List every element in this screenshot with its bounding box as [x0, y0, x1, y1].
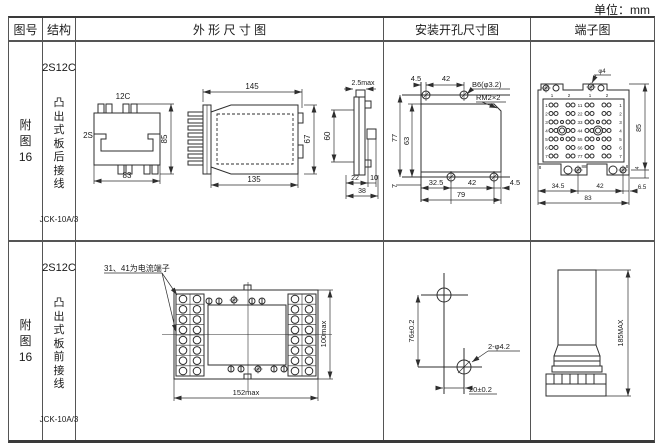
- svg-text:77: 77: [577, 154, 583, 159]
- row2-mounting-drawing: 76±0.2 2-φ4.2 20±0.2: [384, 242, 531, 440]
- svg-text:44: 44: [577, 129, 583, 134]
- svg-text:55: 55: [577, 137, 583, 142]
- header-mounting-label: 安装开孔尺寸图: [415, 21, 499, 38]
- row1-mounting-drawing: 4.5 42 B6(φ3.2) RM2×2 77 63 7: [384, 42, 531, 242]
- right-terminal-group: [288, 294, 316, 376]
- dim-label: 60: [323, 131, 332, 140]
- header-terminal: 端子图: [531, 18, 654, 42]
- dim-label: 2S: [83, 131, 93, 140]
- svg-text:22: 22: [577, 112, 583, 117]
- dim-label: 185MAX: [618, 319, 625, 346]
- profile-view: 2.5max 60 22 10 38: [323, 80, 378, 199]
- dim-label: 12C: [116, 92, 131, 101]
- dim-label: 85: [636, 124, 643, 132]
- hole-spec-label: B6(φ3.2): [472, 80, 502, 89]
- dim-label: 42: [596, 183, 604, 190]
- header-structure: 结构: [43, 18, 76, 42]
- dim-label: 38: [358, 188, 366, 195]
- dimension-table: 图号 结构 外 形 尺 寸 图 安装开孔尺寸图 端子图 附 图 16 2S12C…: [8, 16, 655, 443]
- dim-label: 2.5max: [352, 80, 375, 87]
- header-fig-no: 图号: [9, 18, 43, 42]
- svg-text:11: 11: [578, 103, 583, 108]
- row2-fig-no-cell: 附 图 16: [9, 242, 43, 440]
- svg-text:8: 8: [539, 165, 542, 170]
- svg-text:4: 4: [619, 129, 622, 134]
- header-terminal-label: 端子图: [574, 21, 610, 38]
- front-view: 12C 2S 85 83: [83, 92, 174, 184]
- dim-label: 63: [402, 137, 411, 145]
- thread-spec-label: RM2×2: [476, 93, 500, 102]
- svg-text:6: 6: [545, 146, 548, 151]
- row2-structure-cell: 2S12C 凸 出 式 板 前 接 线 JCK-10A/3: [43, 242, 76, 440]
- row2-terminal-drawing: 185MAX: [531, 242, 654, 440]
- svg-text:2: 2: [619, 112, 622, 117]
- dim-label: 10: [370, 175, 378, 182]
- row2-structure-desc: 凸 出 式 板 前 接 线: [54, 297, 65, 392]
- row2-terminal-cell: 185MAX: [531, 242, 654, 440]
- row2-outline-drawing: 31、41为电流端子: [76, 242, 384, 440]
- dim-label: 4.5: [411, 74, 421, 83]
- datasheet-page: 单位：mm 图号 结构 外 形 尺 寸 图 安装开孔尺寸图 端子图 附 图 16…: [0, 0, 662, 446]
- dim-label: 85: [160, 134, 169, 143]
- svg-text:1: 1: [619, 103, 622, 108]
- svg-text:7: 7: [545, 154, 548, 159]
- svg-text:5: 5: [545, 137, 548, 142]
- dim-label: 6.5: [638, 185, 647, 191]
- row2-mounting-cell: 76±0.2 2-φ4.2 20±0.2: [384, 242, 531, 440]
- row1-structure-desc: 凸 出 式 板 后 接 线: [54, 97, 65, 192]
- svg-text:2: 2: [545, 112, 548, 117]
- row2-relay-code: JCK-10A/3: [40, 415, 79, 424]
- terminal-col-label: 2: [606, 93, 609, 98]
- dim-label: 135: [247, 175, 261, 184]
- row2-fig-no: 附 图 16: [9, 242, 42, 440]
- dim-label: 7: [390, 184, 399, 188]
- row1-relay-code: JCK-10A/3: [40, 215, 79, 224]
- dim-label: 4: [635, 166, 641, 169]
- header-outline-label: 外 形 尺 寸 图: [193, 21, 266, 38]
- header-mounting: 安装开孔尺寸图: [384, 18, 531, 42]
- dim-label: 34.5: [552, 183, 565, 190]
- svg-text:3: 3: [619, 120, 622, 125]
- dim-label: 22: [351, 175, 359, 182]
- svg-text:3: 3: [545, 120, 548, 125]
- hole-spec-label: 2-φ4.2: [488, 342, 510, 351]
- dim-label: 100max: [319, 320, 328, 347]
- terminal-col-label: 1: [551, 93, 554, 98]
- dim-label: 83: [123, 171, 132, 180]
- row2-outline-cell: 31、41为电流端子: [76, 242, 384, 440]
- dim-label: 79: [457, 190, 465, 199]
- header-structure-label: 结构: [47, 21, 71, 38]
- dim-label: 76±0.2: [407, 320, 416, 343]
- svg-text:4: 4: [545, 129, 548, 134]
- row1-fig-no-cell: 附 图 16: [9, 42, 43, 242]
- svg-text:8: 8: [626, 164, 629, 169]
- terminal-col-label: 2: [568, 93, 571, 98]
- hole-spec-label: φ4: [598, 69, 606, 75]
- svg-text:33: 33: [577, 120, 583, 125]
- row1-model: 2S12C: [42, 62, 76, 74]
- row1-outline-drawing: 12C 2S 85 83: [76, 42, 384, 242]
- svg-text:88: 88: [581, 164, 587, 169]
- svg-text:1: 1: [545, 103, 548, 108]
- dim-label: 42: [442, 74, 450, 83]
- note-label: 31、41为电流端子: [104, 263, 170, 273]
- row1-terminal-cell: 1 2 1 2 1: [531, 42, 654, 242]
- row1-terminal-drawing: 1 2 1 2 1: [531, 42, 654, 242]
- dim-label: 32.5: [429, 178, 444, 187]
- dim-label: 77: [390, 134, 399, 142]
- svg-text:66: 66: [577, 146, 583, 151]
- dim-label: 67: [303, 134, 312, 143]
- left-terminal-group: [176, 294, 204, 376]
- dim-label: 42: [468, 178, 476, 187]
- dim-label: 152max: [233, 388, 260, 397]
- terminal-col-label: 1: [589, 93, 592, 98]
- row1-fig-no: 附 图 16: [9, 42, 42, 240]
- row1-outline-cell: 12C 2S 85 83: [76, 42, 384, 242]
- header-outline: 外 形 尺 寸 图: [76, 18, 384, 42]
- dim-label: 145: [245, 82, 259, 91]
- dim-label: 20±0.2: [469, 385, 492, 394]
- dim-label: 4.5: [510, 178, 520, 187]
- dim-label: 83: [584, 195, 592, 202]
- side-view: 145 135 67: [188, 82, 317, 188]
- svg-text:7: 7: [619, 154, 622, 159]
- row2-model: 2S12C: [42, 262, 76, 274]
- row1-structure-cell: 2S12C 凸 出 式 板 后 接 线 JCK-10A/3: [43, 42, 76, 242]
- terminal-numbers: 1 2 3 4 5 6 7 11 22 33 44 55 66 77 1 2 3: [539, 103, 629, 170]
- svg-text:6: 6: [619, 146, 622, 151]
- header-fig-no-label: 图号: [13, 21, 37, 38]
- row1-mounting-cell: 4.5 42 B6(φ3.2) RM2×2 77 63 7: [384, 42, 531, 242]
- svg-text:5: 5: [619, 137, 622, 142]
